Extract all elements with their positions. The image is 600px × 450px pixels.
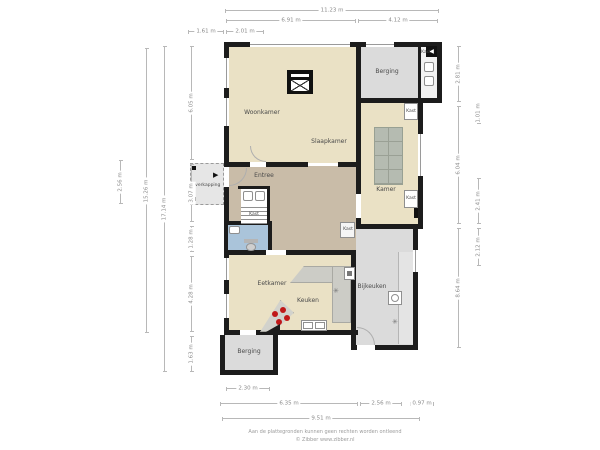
dimension-label: 1.01 m bbox=[476, 101, 483, 124]
dimension-label: 4.28 m bbox=[189, 282, 196, 305]
dimension-top-overkapping: 1.61 m bbox=[188, 31, 224, 32]
dimension-top-total: 11.23 m bbox=[225, 10, 439, 11]
dimension-label: 6.04 m bbox=[456, 153, 463, 176]
dimension-label: 2.12 m bbox=[476, 235, 483, 258]
dimension-top-left-span: 6.91 m bbox=[226, 20, 356, 21]
room-label-kast-kamer-bottom: Kast bbox=[406, 197, 416, 202]
dimension-left-seg-4: 4.28 m bbox=[191, 256, 192, 332]
dimension-label: 8.64 m bbox=[456, 276, 463, 299]
labels-layer: WoonkamerSlaapkamerBergingKastKamerKastK… bbox=[0, 0, 600, 450]
room-label-kast-bijkeuken: Kast bbox=[343, 228, 353, 233]
dimension-label: 0.97 m bbox=[410, 401, 433, 408]
dimension-label: 2.01 m bbox=[233, 29, 256, 36]
dimension-label: 2.41 m bbox=[476, 189, 483, 212]
dimension-label: 17.14 m bbox=[162, 196, 169, 223]
dimension-label: 6.35 m bbox=[277, 401, 300, 408]
dimension-right-seg-1: 2.81 m bbox=[458, 46, 459, 102]
dimension-left-overkapping: 2.56 m bbox=[120, 160, 121, 204]
dimension-bottom-total: 9.51 m bbox=[222, 418, 420, 419]
dimension-left-inner-total: 15.26 m bbox=[146, 48, 147, 333]
dimension-right-seg-3: 8.64 m bbox=[458, 228, 459, 348]
dimension-label: 6.91 m bbox=[279, 18, 302, 25]
floorplan-canvas: ◀ ▶ ✳ ✳ WoonkamerSlaapkamerBergingKastKa… bbox=[0, 0, 600, 450]
dimension-bottom-small: 0.97 m bbox=[410, 403, 434, 404]
dimension-bottom-mid-span: 2.56 m bbox=[360, 403, 402, 404]
dimension-left-seg-1: 6.05 m bbox=[191, 46, 192, 160]
dimension-label: 6.05 m bbox=[189, 91, 196, 114]
dimension-top-right-span: 4.12 m bbox=[358, 20, 438, 21]
dimension-label: 4.12 m bbox=[386, 18, 409, 25]
room-label-slaapkamer: Slaapkamer bbox=[311, 139, 347, 145]
dimension-label: 2.56 m bbox=[369, 401, 392, 408]
room-label-bijkeuken: Bijkeuken bbox=[358, 284, 387, 290]
dimension-label: 1.61 m bbox=[194, 29, 217, 36]
dimension-label: 1.28 m bbox=[189, 227, 196, 250]
dimension-right-out-2: 2.41 m bbox=[478, 178, 479, 224]
dimension-right-out-3: 2.12 m bbox=[478, 228, 479, 266]
dimension-label: 9.51 m bbox=[309, 416, 332, 423]
dimension-label: 11.23 m bbox=[319, 8, 346, 15]
disclaimer: Aan de plattegronden kunnen geen rechten… bbox=[150, 429, 500, 444]
room-label-kast-kamer-top: Kast bbox=[406, 110, 416, 115]
dimension-label: 3.07 m bbox=[189, 181, 196, 204]
dimension-bottom-berging: 2.30 m bbox=[226, 388, 270, 389]
disclaimer-line1: Aan de plattegronden kunnen geen rechten… bbox=[150, 429, 500, 437]
dimension-label: 2.56 m bbox=[118, 170, 125, 193]
dimension-top-small: 2.01 m bbox=[226, 31, 264, 32]
room-label-berging-bottom: Berging bbox=[237, 349, 260, 355]
room-label-overkapping: Overkapping bbox=[192, 184, 221, 189]
disclaimer-line2: © Zibber www.zibber.nl bbox=[150, 437, 500, 445]
dimension-label: 2.30 m bbox=[236, 386, 259, 393]
dimension-left-seg-3: 1.28 m bbox=[191, 226, 192, 252]
dimension-left-seg-2: 3.07 m bbox=[191, 164, 192, 222]
dimension-label: 2.81 m bbox=[456, 62, 463, 85]
dimension-left-total: 17.14 m bbox=[164, 46, 165, 372]
dimension-right-out-1: 1.01 m bbox=[478, 102, 479, 124]
dimension-right-seg-2: 6.04 m bbox=[458, 106, 459, 224]
room-label-eetkamer: Eetkamer bbox=[258, 281, 287, 287]
dimension-left-seg-5: 1.63 m bbox=[191, 336, 192, 372]
room-label-keuken: Keuken bbox=[297, 298, 319, 304]
dimension-label: 15.26 m bbox=[144, 177, 151, 204]
dimension-label: 1.63 m bbox=[189, 342, 196, 365]
room-label-kamer: Kamer bbox=[376, 187, 396, 193]
room-label-woonkamer: Woonkamer bbox=[244, 110, 280, 116]
room-label-entree: Entree bbox=[254, 173, 274, 179]
dimension-bottom-left-span: 6.35 m bbox=[220, 403, 358, 404]
room-label-berging-top: Berging bbox=[375, 69, 398, 75]
room-label-kast-top: Kast bbox=[421, 51, 431, 56]
room-label-kast-stairs: Kast bbox=[249, 213, 259, 218]
